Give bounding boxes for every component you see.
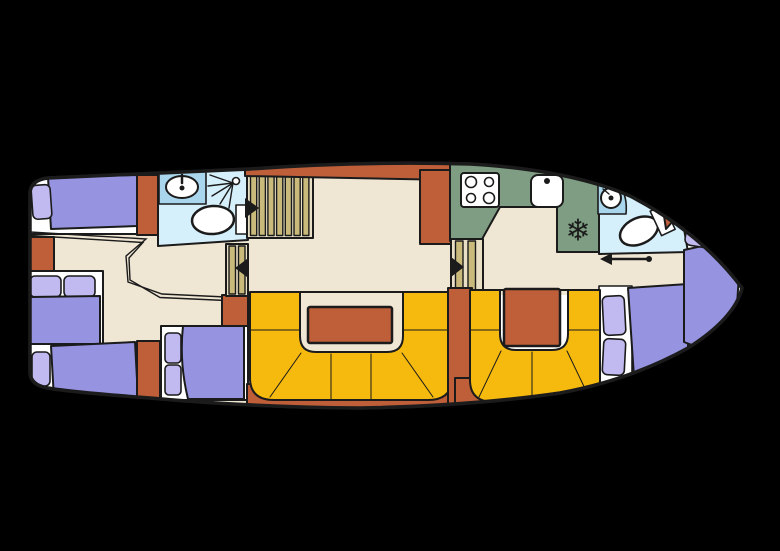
faucet-dot xyxy=(544,178,550,184)
fridge-snowflake-icon: ❄ xyxy=(565,214,590,249)
helm-cabinet xyxy=(420,170,452,244)
cabinet xyxy=(222,295,248,326)
port-single-berth xyxy=(48,175,137,229)
salon-table xyxy=(308,307,392,343)
forward-steps xyxy=(226,244,248,296)
burner xyxy=(467,194,476,203)
cabinet xyxy=(137,341,160,398)
burner xyxy=(484,193,495,204)
berth-pillow xyxy=(602,295,626,335)
burner xyxy=(466,177,477,188)
drain-dot xyxy=(609,196,614,201)
berth-pillow xyxy=(165,333,181,363)
berth-pillow xyxy=(602,338,626,375)
drain-dot xyxy=(180,186,185,191)
boat-floor-plan: ❄ xyxy=(0,0,780,551)
dinette-table xyxy=(504,289,560,346)
mid-berth xyxy=(182,326,244,399)
main-stairs xyxy=(245,170,313,238)
door-pivot-dot xyxy=(646,256,652,262)
burner xyxy=(485,178,494,187)
cabinet xyxy=(137,175,158,235)
berth-pillow xyxy=(165,365,181,395)
double-berth xyxy=(27,296,100,346)
berth-pillow xyxy=(64,276,95,297)
forward-bathroom xyxy=(158,168,248,246)
floor-plan-svg: ❄ xyxy=(0,0,780,551)
berth-pillow xyxy=(30,276,61,297)
berth-pillow xyxy=(31,184,52,219)
